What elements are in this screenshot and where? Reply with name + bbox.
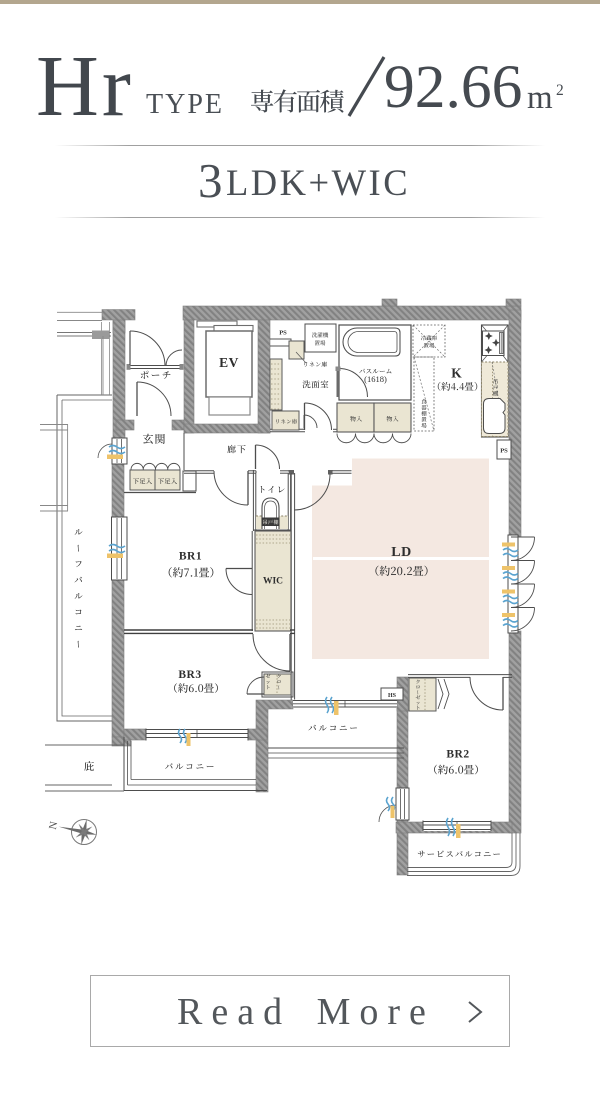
svg-text:BR2: BR2 — [446, 749, 469, 761]
svg-text:PS: PS — [279, 330, 287, 337]
svg-text:HS: HS — [388, 693, 397, 699]
svg-text:EV: EV — [219, 355, 239, 370]
svg-text:LD: LD — [391, 545, 411, 560]
svg-text:N: N — [47, 820, 60, 830]
svg-text:BR3: BR3 — [178, 669, 201, 681]
svg-text:(1618): (1618) — [364, 374, 387, 384]
svg-text:PS: PS — [500, 448, 508, 455]
svg-text:WIC: WIC — [263, 577, 283, 587]
svg-text:BR1: BR1 — [179, 551, 202, 563]
svg-text:K: K — [451, 366, 462, 381]
